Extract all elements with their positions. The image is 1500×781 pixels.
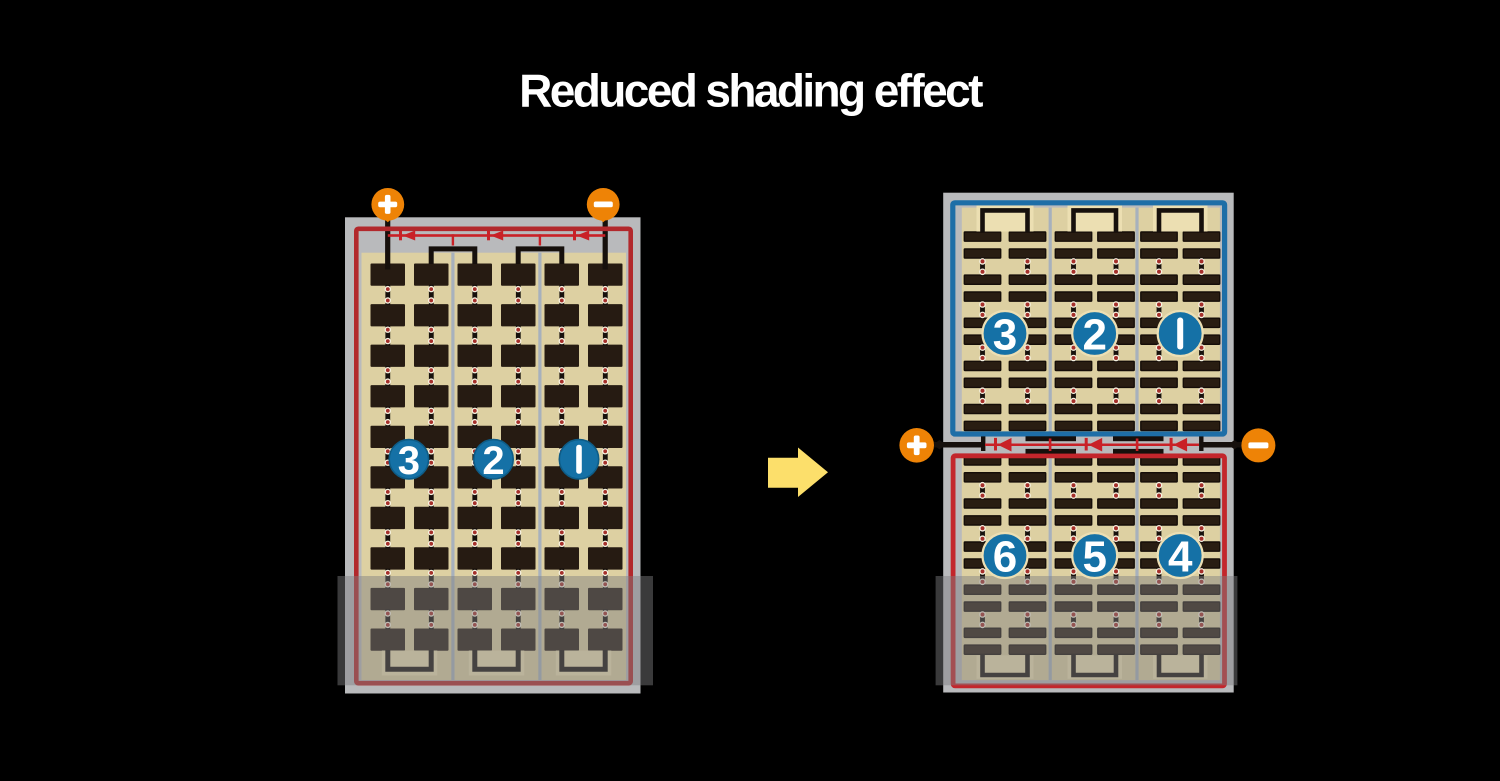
svg-text:4: 4 (1168, 533, 1193, 582)
svg-text:5: 5 (1082, 533, 1106, 582)
svg-text:Reduced shading effect: Reduced shading effect (519, 65, 983, 117)
svg-text:6: 6 (993, 533, 1017, 582)
svg-text:3: 3 (993, 311, 1017, 360)
svg-text:3: 3 (398, 439, 420, 483)
svg-text:2: 2 (482, 439, 504, 483)
svg-text:2: 2 (1082, 311, 1106, 360)
